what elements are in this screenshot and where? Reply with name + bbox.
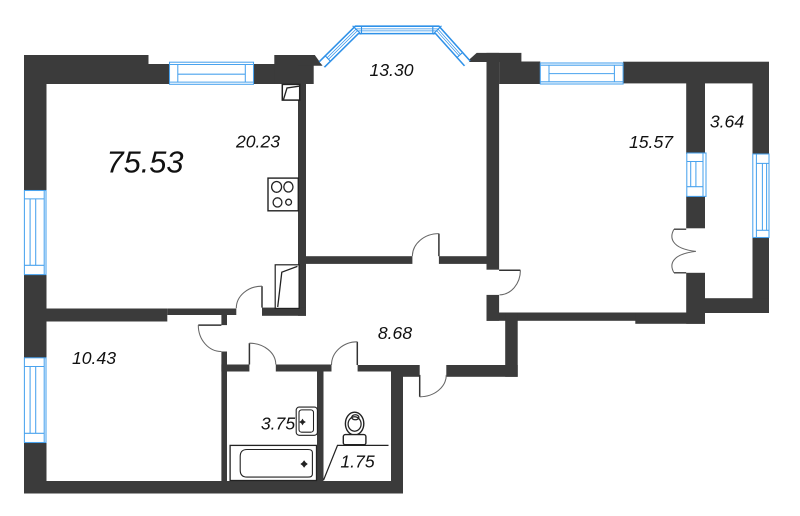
svg-text:15.57: 15.57 [629, 132, 674, 152]
svg-text:10.43: 10.43 [72, 348, 116, 368]
svg-text:3.64: 3.64 [710, 112, 744, 132]
svg-text:75.53: 75.53 [106, 144, 183, 179]
svg-text:8.68: 8.68 [378, 323, 412, 343]
svg-text:13.30: 13.30 [369, 60, 413, 80]
svg-text:1.75: 1.75 [340, 451, 374, 471]
svg-text:20.23: 20.23 [235, 131, 280, 151]
svg-text:3.75: 3.75 [261, 413, 295, 433]
